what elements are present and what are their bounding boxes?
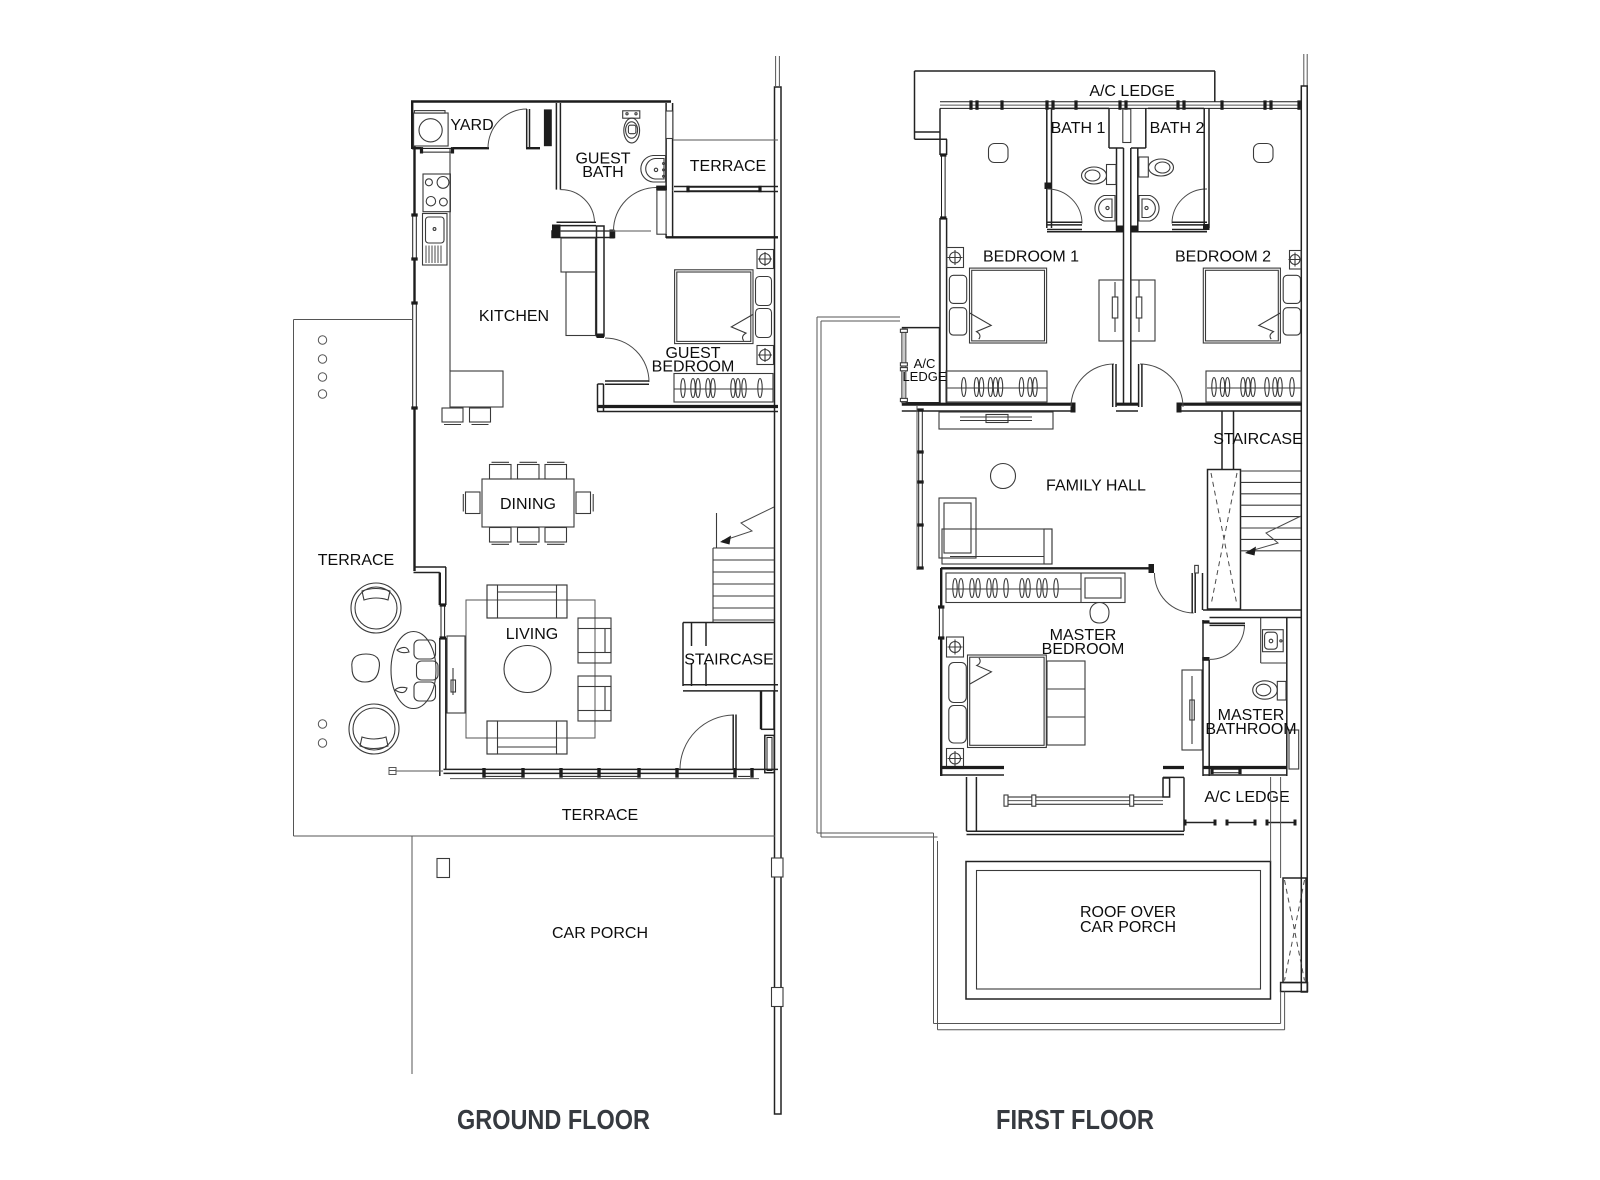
- svg-text:TERRACE: TERRACE: [318, 552, 394, 569]
- svg-text:FAMILY HALL: FAMILY HALL: [1046, 478, 1146, 495]
- svg-text:TERRACE: TERRACE: [690, 158, 766, 175]
- svg-text:STAIRCASE: STAIRCASE: [1213, 431, 1303, 448]
- svg-text:LIVING: LIVING: [506, 626, 558, 643]
- svg-text:BEDROOM 1: BEDROOM 1: [983, 249, 1079, 266]
- svg-text:STAIRCASE: STAIRCASE: [684, 652, 774, 669]
- svg-text:BATH: BATH: [582, 164, 623, 181]
- svg-text:BEDROOM: BEDROOM: [1042, 641, 1125, 658]
- svg-text:GROUND FLOOR: GROUND FLOOR: [457, 1104, 650, 1135]
- svg-text:CAR PORCH: CAR PORCH: [1080, 919, 1176, 936]
- svg-text:BATH 2: BATH 2: [1150, 120, 1205, 137]
- svg-text:BEDROOM 2: BEDROOM 2: [1175, 249, 1271, 266]
- svg-text:LEDGE: LEDGE: [902, 369, 946, 384]
- svg-text:YARD: YARD: [450, 117, 493, 134]
- svg-text:BATHROOM: BATHROOM: [1205, 721, 1296, 738]
- svg-text:DINING: DINING: [500, 496, 556, 513]
- svg-text:BEDROOM: BEDROOM: [652, 359, 735, 376]
- svg-text:TERRACE: TERRACE: [562, 807, 638, 824]
- svg-text:A/C LEDGE: A/C LEDGE: [1089, 83, 1174, 100]
- svg-text:CAR PORCH: CAR PORCH: [552, 925, 648, 942]
- svg-text:BATH 1: BATH 1: [1051, 120, 1106, 137]
- svg-text:A/C LEDGE: A/C LEDGE: [1204, 789, 1289, 806]
- svg-text:KITCHEN: KITCHEN: [479, 308, 549, 325]
- svg-text:FIRST FLOOR: FIRST FLOOR: [996, 1104, 1154, 1135]
